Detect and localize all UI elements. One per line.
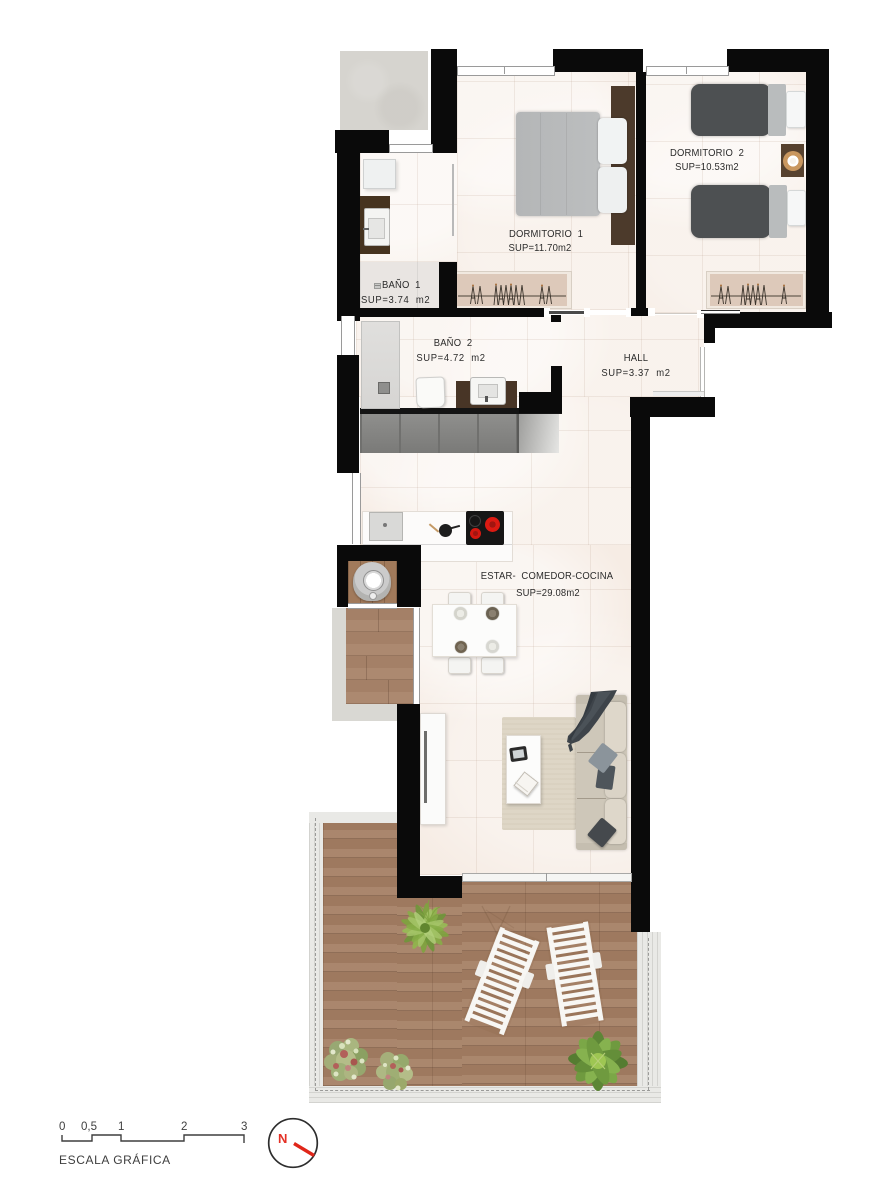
- svg-text:1: 1: [118, 1121, 124, 1133]
- svg-text:ESCALA GRÁFICA: ESCALA GRÁFICA: [59, 1152, 171, 1167]
- svg-text:0: 0: [59, 1121, 65, 1133]
- svg-text:N: N: [278, 1131, 287, 1146]
- svg-text:3: 3: [241, 1121, 247, 1133]
- svg-text:2: 2: [181, 1121, 187, 1133]
- svg-text:0,5: 0,5: [81, 1121, 97, 1133]
